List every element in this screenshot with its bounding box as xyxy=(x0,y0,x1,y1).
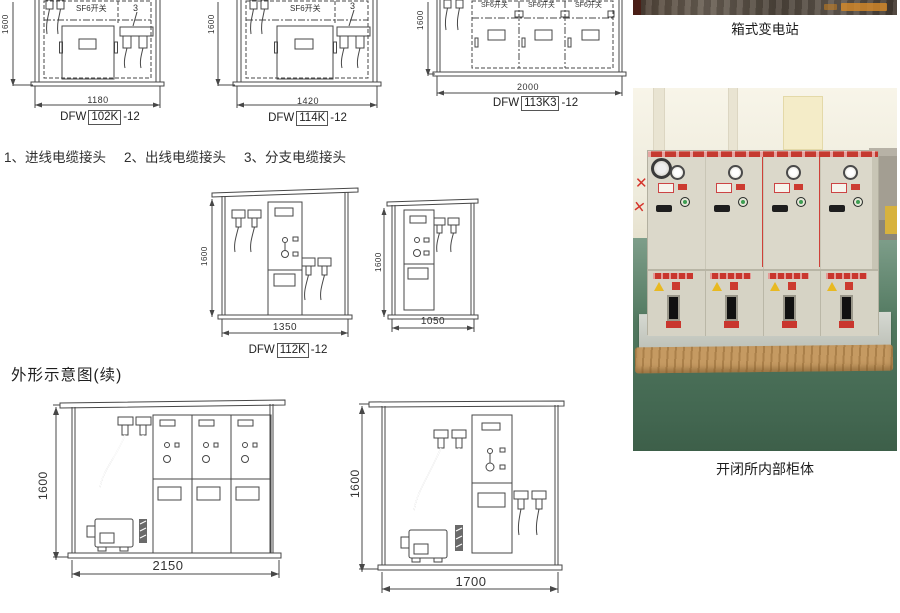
door-handle xyxy=(783,295,796,321)
danger-label xyxy=(730,282,738,290)
b1-width-dim: 2150 xyxy=(132,558,204,573)
cabinet-bay xyxy=(706,157,764,269)
caption-box-substation: 箱式变电站 xyxy=(633,18,897,38)
cabinet-door xyxy=(821,271,878,336)
nameplate xyxy=(774,183,790,193)
warning-triangle-icon xyxy=(770,282,780,291)
d2-width-dim: 1420 xyxy=(270,96,346,106)
drawing-dfw102k xyxy=(0,0,170,108)
danger-label xyxy=(788,282,796,290)
d3-unit-label-2: SF6开关 xyxy=(528,0,555,10)
cabinet-door xyxy=(764,271,822,336)
photo-switchgear-cabinet: ✕ ✕ xyxy=(633,88,897,451)
cabinet-upper-bays xyxy=(648,157,878,269)
cabinet-body xyxy=(647,150,879,335)
red-tag xyxy=(666,321,681,328)
warning-triangle-icon xyxy=(827,282,837,291)
nameplate xyxy=(716,183,732,193)
legend-item-1: 1、进线电缆接头 xyxy=(4,146,106,166)
green-indicator xyxy=(680,197,690,207)
warning-triangle-icon xyxy=(654,282,664,291)
danger-label xyxy=(845,282,853,290)
watermark-small xyxy=(824,4,837,10)
legend-item-3: 3、分支电缆接头 xyxy=(244,146,346,166)
cabinet-bay xyxy=(764,157,822,269)
photo-background-door xyxy=(783,96,823,150)
pressure-gauge xyxy=(728,165,743,180)
d1-callout-3: 3 xyxy=(133,3,138,13)
green-indicator xyxy=(796,197,806,207)
d2-model-label: DFW114K-12 xyxy=(245,111,370,126)
pressure-gauge xyxy=(786,165,801,180)
vent-slot xyxy=(714,205,730,212)
warning-triangle-icon xyxy=(712,282,722,291)
d1-unit-label: SF6开关 xyxy=(76,3,107,14)
drawing-dfw112k xyxy=(195,182,370,360)
m1-height-dim: 1600 xyxy=(200,246,209,266)
red-sticker xyxy=(851,184,860,190)
red-sticker xyxy=(794,184,803,190)
m2-height-dim: 1600 xyxy=(374,252,383,272)
pressure-gauge xyxy=(843,165,858,180)
d1-width-dim: 1180 xyxy=(60,95,136,105)
green-indicator xyxy=(853,197,863,207)
warning-banner xyxy=(768,273,809,279)
danger-label xyxy=(672,282,680,290)
cabinet-door xyxy=(648,271,706,336)
photo-edge xyxy=(633,0,641,15)
vent-slot xyxy=(772,205,788,212)
red-sticker xyxy=(678,184,687,190)
warning-banner xyxy=(826,273,867,279)
d2-height-dim: 1600 xyxy=(207,14,216,34)
d2-unit-label: SF6开关 xyxy=(290,3,321,14)
drawing-1700 xyxy=(338,393,578,600)
pressure-gauge xyxy=(670,165,685,180)
b1-height-dim: 1600 xyxy=(36,471,50,500)
vent-slot xyxy=(656,205,672,212)
cabinet-lower-doors xyxy=(648,269,878,336)
d1-height-dim: 1600 xyxy=(1,14,10,34)
catalog-page: 1600 SF6开关 3 1180 DFW102K-12 1600 SF6开关 … xyxy=(0,0,900,613)
d3-unit-label-1: SF6开关 xyxy=(481,0,508,10)
photo-substation-bottom-strip xyxy=(633,0,897,15)
red-sticker xyxy=(736,184,745,190)
cabinet-bay xyxy=(648,157,706,269)
watermark xyxy=(841,3,887,11)
red-tag xyxy=(839,321,854,328)
m1-width-dim: 1350 xyxy=(252,322,318,333)
m1-model-label: DFW112K-12 xyxy=(238,343,338,358)
d1-model-label: DFW102K-12 xyxy=(40,110,160,125)
d3-model-label: DFW113K3-12 xyxy=(478,96,593,111)
d3-height-dim: 1600 xyxy=(416,10,425,30)
red-tag xyxy=(724,321,739,328)
door-handle xyxy=(725,295,738,321)
nameplate xyxy=(831,183,847,193)
drawing-dfw114k xyxy=(200,0,385,108)
b2-width-dim: 1700 xyxy=(438,574,504,589)
d3-unit-label-3: SF6开关 xyxy=(575,0,602,10)
pallet-wood-plank xyxy=(635,345,893,374)
vent-slot xyxy=(829,205,845,212)
m2-width-dim: 1050 xyxy=(402,316,464,327)
cabinet-bay xyxy=(821,157,878,269)
section-heading-outline-continued: 外形示意图(续) xyxy=(11,363,122,385)
cable-joint-legend: 1、进线电缆接头 2、出线电缆接头 3、分支电缆接头 xyxy=(4,146,346,166)
wood-grain xyxy=(635,345,893,374)
warning-banner xyxy=(653,273,694,279)
b2-height-dim: 1600 xyxy=(348,469,362,498)
d3-width-dim: 2000 xyxy=(490,82,566,92)
door-handle xyxy=(840,295,853,321)
drawing-1050 xyxy=(373,192,490,334)
d2-callout-3: 3 xyxy=(350,1,355,11)
green-indicator xyxy=(738,197,748,207)
cabinet-door xyxy=(706,271,764,336)
photo-yellow-object xyxy=(885,206,897,234)
door-handle xyxy=(667,295,680,321)
red-x-mark: ✕ xyxy=(635,174,648,192)
warning-banner xyxy=(710,273,751,279)
caption-switching-station-cabinet: 开闭所内部柜体 xyxy=(633,459,897,479)
legend-item-2: 2、出线电缆接头 xyxy=(124,146,226,166)
nameplate xyxy=(658,183,674,193)
red-tag xyxy=(782,321,797,328)
